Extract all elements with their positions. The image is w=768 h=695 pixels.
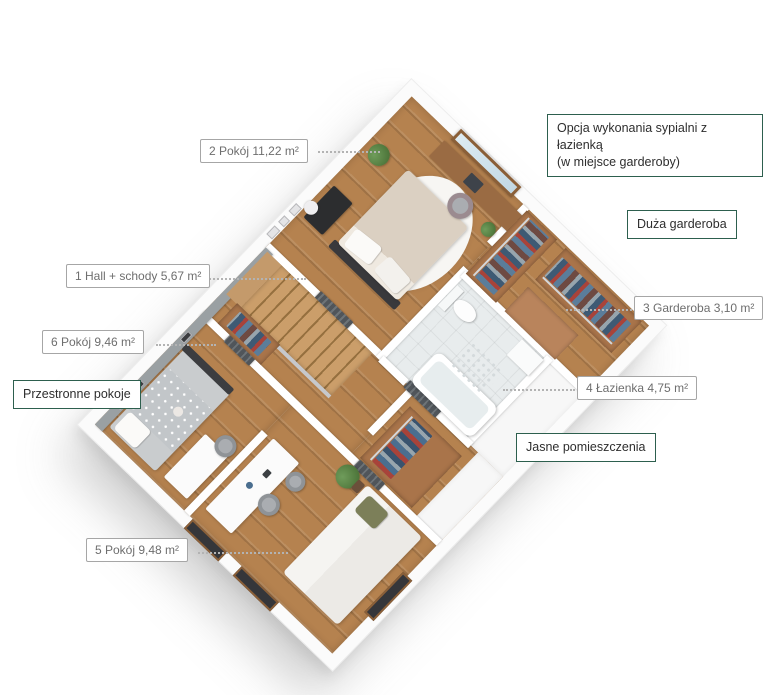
leader-line <box>503 389 575 391</box>
area-label-room-5: 5 Pokój 9,48 m² <box>86 538 188 562</box>
area-label-hall-schody: 1 Hall + schody 5,67 m² <box>66 264 210 288</box>
area-label-room-2: 2 Pokój 11,22 m² <box>200 139 308 163</box>
leader-line <box>318 151 380 153</box>
feature-label-jasne-pomieszczenia: Jasne pomieszczenia <box>516 433 656 462</box>
feature-label-przestronne-pokoje: Przestronne pokoje <box>13 380 141 409</box>
area-label-room-6: 6 Pokój 9,46 m² <box>42 330 144 354</box>
leader-line <box>566 309 632 311</box>
area-label-lazienka-4: 4 Łazienka 4,75 m² <box>577 376 697 400</box>
leader-line <box>198 552 288 554</box>
area-label-garderoba-3: 3 Garderoba 3,10 m² <box>634 296 763 320</box>
leader-line <box>156 344 216 346</box>
feature-label-duza-garderoba: Duża garderoba <box>627 210 737 239</box>
floorplan-scene: 2 Pokój 11,22 m² 1 Hall + schody 5,67 m²… <box>0 0 768 695</box>
option-note-line1: Opcja wykonania sypialni z łazienką <box>557 120 753 154</box>
feature-label-option-note: Opcja wykonania sypialni z łazienką (w m… <box>547 114 763 177</box>
option-note-line2: (w miejsce garderoby) <box>557 154 753 171</box>
